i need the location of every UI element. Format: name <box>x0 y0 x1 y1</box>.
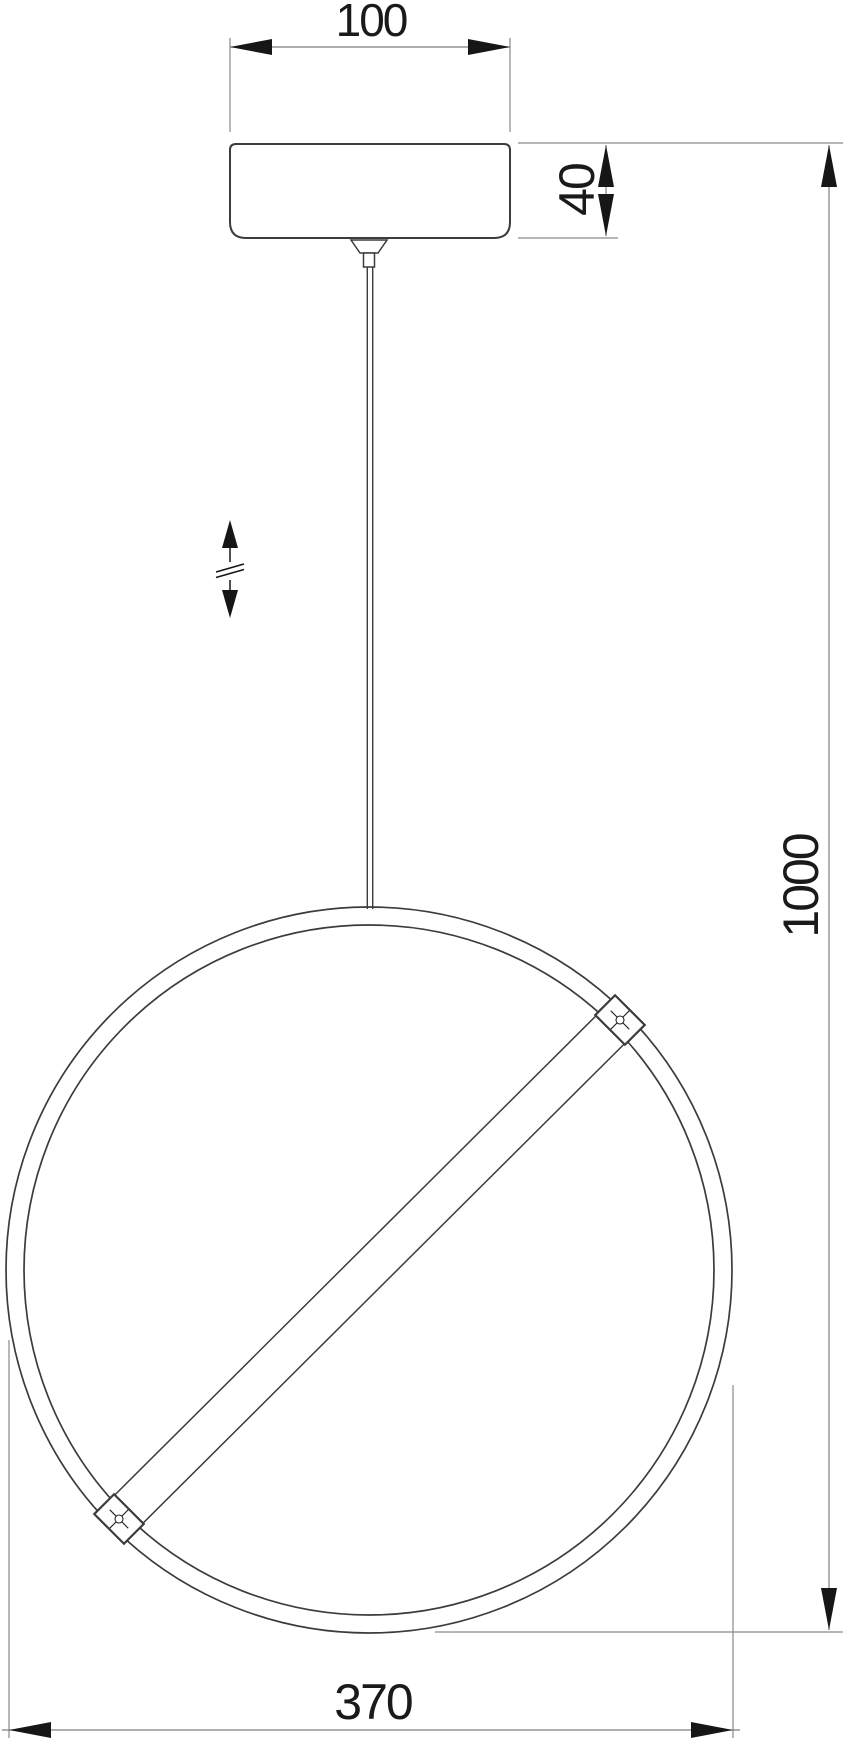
diagonal-led-tube <box>94 995 645 1544</box>
adjust-arrow-up-icon <box>222 520 238 548</box>
arrow-left-icon <box>230 39 272 55</box>
canopy-body <box>230 144 510 238</box>
suspension-cable <box>367 267 372 909</box>
arrow-right-icon <box>468 39 510 55</box>
arrow-left-icon <box>9 1722 51 1738</box>
tube-body <box>115 1016 624 1523</box>
arrow-up-icon <box>821 145 837 187</box>
ceiling-canopy <box>230 144 510 267</box>
screw-head-icon <box>115 1515 123 1523</box>
drawing-canvas: 100 40 1000 370 <box>0 0 848 1744</box>
screw-head-icon <box>616 1016 624 1024</box>
dim-label-ring-width: 370 <box>334 1677 411 1727</box>
adjust-arrow-down-icon <box>222 590 238 618</box>
height-adjustable-symbol <box>216 520 244 618</box>
lamp-dimension-drawing <box>0 0 848 1744</box>
dimension-lines <box>2 47 829 1730</box>
arrow-down-icon <box>821 1588 837 1630</box>
dim-label-canopy-width: 100 <box>336 0 407 43</box>
arrow-right-icon <box>691 1722 733 1738</box>
dim-label-overall-height: 1000 <box>776 834 826 937</box>
cable-cone <box>351 240 387 253</box>
dim-label-canopy-height: 40 <box>552 164 602 216</box>
cable-grip <box>364 253 375 267</box>
